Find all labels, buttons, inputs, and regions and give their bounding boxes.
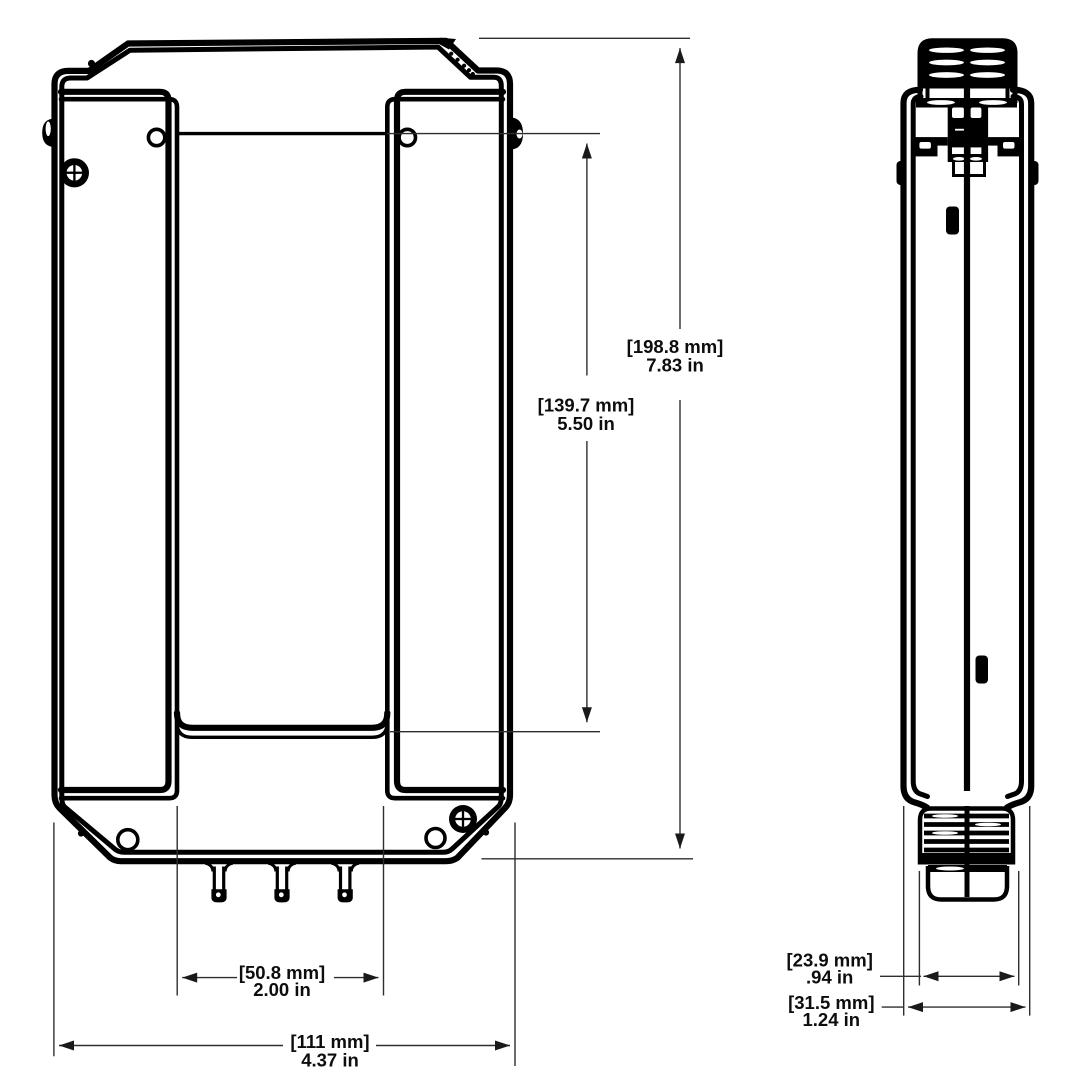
svg-text:7.83 in: 7.83 in (646, 355, 704, 376)
svg-text:4.37 in: 4.37 in (301, 1050, 359, 1071)
svg-text:.94 in: .94 in (806, 967, 853, 988)
svg-text:5.50 in: 5.50 in (557, 413, 615, 434)
svg-text:1.24 in: 1.24 in (803, 1009, 861, 1030)
svg-text:2.00 in: 2.00 in (253, 979, 311, 1000)
